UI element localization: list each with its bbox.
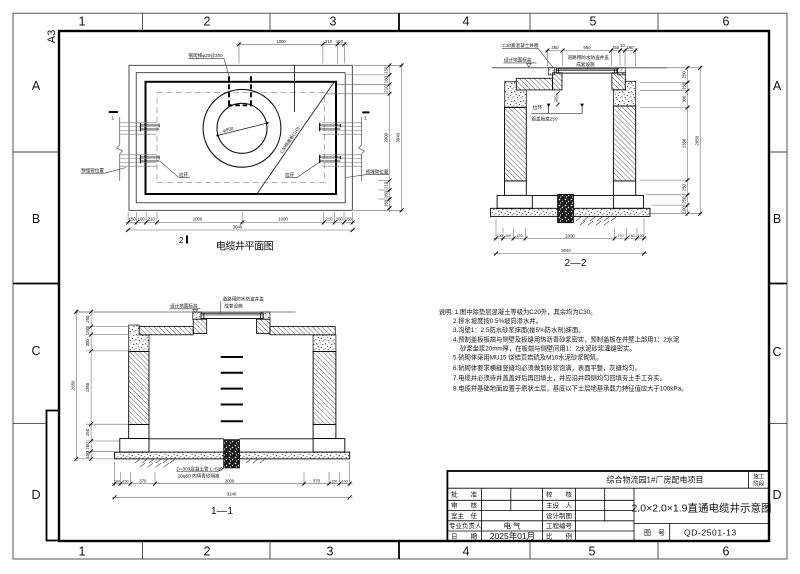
svg-text:250: 250 xyxy=(681,184,686,192)
svg-text:100: 100 xyxy=(497,234,503,238)
svg-text:4.预制盖板板端与侧壁及板缝用热沥青砂浆密实，预制盖板在井壁: 4.预制盖板板端与侧壁及板缝用热沥青砂浆密实，预制盖板在井壁上部用1：2水泥 xyxy=(453,334,680,343)
svg-text:370: 370 xyxy=(139,479,147,484)
svg-text:1: 1 xyxy=(79,544,86,558)
svg-text:3.沟壁1：2.5防水砂浆抹面(掽5%防水剂)抹面。: 3.沟壁1：2.5防水砂浆抹面(掽5%防水剂)抹面。 xyxy=(453,325,585,334)
svg-text:设计制图: 设计制图 xyxy=(546,511,572,520)
svg-text:100: 100 xyxy=(681,206,686,214)
svg-text:A: A xyxy=(32,79,41,93)
svg-text:1350: 1350 xyxy=(85,382,90,392)
svg-text:砂浆坐浆20mm厚，在板端与侧壁间用1：2水泥砂浆灌缝密实。: 砂浆坐浆20mm厚，在板端与侧壁间用1：2水泥砂浆灌缝密实。 xyxy=(460,343,636,352)
svg-text:A: A xyxy=(773,79,782,93)
svg-text:1000: 1000 xyxy=(278,217,288,222)
svg-text:比 例: 比 例 xyxy=(546,532,572,541)
svg-text:150: 150 xyxy=(629,234,635,238)
svg-text:170: 170 xyxy=(618,234,624,238)
svg-text:综合物流园1#厂房配电项目: 综合物流园1#厂房配电项目 xyxy=(607,475,704,485)
svg-text:250: 250 xyxy=(681,71,686,79)
svg-text:2.排水坡度按0.5%坡向渗水井。: 2.排水坡度按0.5%坡向渗水井。 xyxy=(453,316,542,325)
svg-text:B: B xyxy=(32,212,40,226)
svg-text:3040: 3040 xyxy=(561,248,571,253)
svg-text:150: 150 xyxy=(681,82,686,90)
svg-text:5: 5 xyxy=(590,15,597,29)
svg-text:1: 1 xyxy=(111,116,114,121)
svg-text:室主 任: 室主 任 xyxy=(451,511,478,520)
svg-text:4: 4 xyxy=(463,15,470,29)
svg-text:1: 1 xyxy=(79,15,86,29)
svg-text:A3: A3 xyxy=(46,30,58,43)
svg-text:2: 2 xyxy=(204,15,211,29)
svg-text:电缆井平面图: 电缆井平面图 xyxy=(216,240,274,253)
svg-text:210: 210 xyxy=(325,39,333,44)
svg-text:150: 150 xyxy=(383,199,388,207)
svg-text:成套设施: 成套设施 xyxy=(576,61,595,68)
svg-text:250: 250 xyxy=(612,45,620,50)
svg-text:5: 5 xyxy=(589,544,596,558)
svg-text:250: 250 xyxy=(681,196,686,204)
svg-text:图 号: 图 号 xyxy=(644,529,665,537)
svg-text:D: D xyxy=(772,488,781,502)
svg-text:6: 6 xyxy=(723,15,730,29)
svg-text:300: 300 xyxy=(85,339,90,347)
svg-text:阶段: 阶段 xyxy=(753,479,765,487)
svg-text:说明: 1.图中除垫层混凝土等级为C20外，其余均为C30。: 说明: 1.图中除垫层混凝土等级为C20外，其余均为C30。 xyxy=(439,307,597,316)
svg-text:10: 10 xyxy=(620,43,625,48)
svg-text:20φ50 内填青砂隔离: 20φ50 内填青砂隔离 xyxy=(178,472,220,479)
svg-text:250: 250 xyxy=(85,315,90,323)
svg-text:210: 210 xyxy=(148,217,156,222)
svg-text:C: C xyxy=(772,345,781,359)
svg-text:设计地面标高: 设计地面标高 xyxy=(170,303,198,310)
svg-text:批 准: 批 准 xyxy=(451,490,478,499)
svg-text:150: 150 xyxy=(383,66,388,74)
svg-text:300: 300 xyxy=(681,95,686,103)
svg-text:日 期: 日 期 xyxy=(451,533,478,541)
svg-text:150: 150 xyxy=(345,217,353,222)
svg-text:成套设施: 成套设施 xyxy=(224,303,243,310)
svg-text:钢爬梯φ20@300: 钢爬梯φ20@300 xyxy=(189,52,224,59)
svg-text:210: 210 xyxy=(325,217,333,222)
svg-text:2—2: 2—2 xyxy=(564,257,586,269)
svg-text:100: 100 xyxy=(85,451,90,459)
svg-text:150: 150 xyxy=(123,480,129,484)
svg-text:1—1: 1—1 xyxy=(211,505,233,517)
svg-text:160: 160 xyxy=(627,45,635,50)
svg-text:1: 1 xyxy=(364,116,367,121)
svg-text:专业负责人: 专业负责人 xyxy=(449,521,482,530)
svg-text:主设 人: 主设 人 xyxy=(546,501,573,510)
svg-text:QD-2501-13: QD-2501-13 xyxy=(684,527,737,537)
svg-text:150: 150 xyxy=(85,326,90,334)
svg-text:250: 250 xyxy=(554,95,558,101)
svg-text:C30素混凝土井圈: C30素混凝土井圈 xyxy=(503,42,539,49)
svg-text:250: 250 xyxy=(85,442,90,450)
svg-text:150: 150 xyxy=(331,480,337,484)
svg-text:距盖板底250: 距盖板底250 xyxy=(532,116,558,123)
svg-text:5.砊砌体采用MU15 烧结页岩砊及M10水泥砂浆砌筑。: 5.砊砌体采用MU15 烧结页岩砊及M10水泥砂浆砌筑。 xyxy=(453,353,602,362)
svg-text:3: 3 xyxy=(330,15,337,29)
svg-text:370: 370 xyxy=(313,479,321,484)
svg-text:道路用防水防盗井盖: 道路用防水防盗井盖 xyxy=(568,54,610,61)
svg-text:250: 250 xyxy=(551,45,559,50)
svg-text:3240: 3240 xyxy=(227,492,237,497)
svg-text:1000: 1000 xyxy=(193,217,203,222)
svg-text:设计地面标高: 设计地面标高 xyxy=(504,57,532,64)
svg-text:3040: 3040 xyxy=(233,225,243,230)
svg-text:2: 2 xyxy=(204,544,211,558)
svg-text:100: 100 xyxy=(638,234,644,238)
svg-text:校 核: 校 核 xyxy=(546,490,573,499)
svg-text:2000: 2000 xyxy=(565,233,575,238)
svg-text:170: 170 xyxy=(517,234,523,238)
svg-text:2: 2 xyxy=(179,236,184,245)
svg-text:4: 4 xyxy=(463,544,470,558)
svg-text:7.电缆井必须待井盖盖好后再回填土，并应沿井四侧均匀回填夯土: 7.电缆井必须待井盖盖好后再回填土，并应沿井四侧均匀回填夯土手工夯实。 xyxy=(453,373,666,382)
svg-text:210: 210 xyxy=(383,181,388,189)
svg-text:950: 950 xyxy=(583,45,591,50)
svg-text:C: C xyxy=(31,344,40,358)
svg-text:250: 250 xyxy=(85,428,90,436)
svg-text:2025年01月: 2025年01月 xyxy=(490,531,535,541)
svg-text:拉环: 拉环 xyxy=(533,104,543,111)
svg-text:6: 6 xyxy=(723,544,730,558)
svg-text:审 核: 审 核 xyxy=(451,501,478,510)
svg-text:3: 3 xyxy=(327,544,334,558)
svg-text:B: B xyxy=(773,212,781,226)
svg-text:150: 150 xyxy=(505,234,511,238)
svg-text:2000: 2000 xyxy=(383,132,388,142)
svg-text:8.电缆井基础地面应置于原状土层，基底以下土层地基承载力特征: 8.电缆井基础地面应置于原状土层，基底以下土层地基承载力特征值应大于100kPa… xyxy=(453,384,687,393)
svg-text:100: 100 xyxy=(114,480,120,484)
svg-text:工程编号: 工程编号 xyxy=(546,521,573,530)
svg-text:施工: 施工 xyxy=(753,472,765,480)
svg-text:道路用防水防盗井盖: 道路用防水防盗井盖 xyxy=(223,296,265,303)
svg-text:3040: 3040 xyxy=(395,132,400,142)
svg-text:6.砊砌体要求横缝竖缝均必须做到砂浆饱满，表面平整，灰缝均匀: 6.砊砌体要求横缝竖缝均必须做到砂浆饱满，表面平整，灰缝均匀。 xyxy=(453,363,641,372)
svg-text:1350: 1350 xyxy=(681,138,686,148)
svg-text:2000: 2000 xyxy=(225,479,235,484)
svg-text:2650: 2650 xyxy=(71,380,76,390)
svg-text:2650: 2650 xyxy=(695,135,700,145)
svg-text:160: 160 xyxy=(138,217,146,222)
svg-text:160: 160 xyxy=(336,39,344,44)
svg-text:1000: 1000 xyxy=(276,39,286,44)
svg-text:D: D xyxy=(31,488,40,502)
svg-text:160: 160 xyxy=(383,75,388,83)
svg-text:2.0×2.0×1.9直通电缆井示意图: 2.0×2.0×1.9直通电缆井示意图 xyxy=(631,502,771,515)
svg-text:100: 100 xyxy=(342,480,348,484)
svg-text:150: 150 xyxy=(129,217,137,222)
svg-text:210: 210 xyxy=(383,85,388,93)
svg-text:160: 160 xyxy=(383,190,388,198)
svg-text:电 气: 电 气 xyxy=(503,521,521,531)
svg-text:160: 160 xyxy=(336,217,344,222)
